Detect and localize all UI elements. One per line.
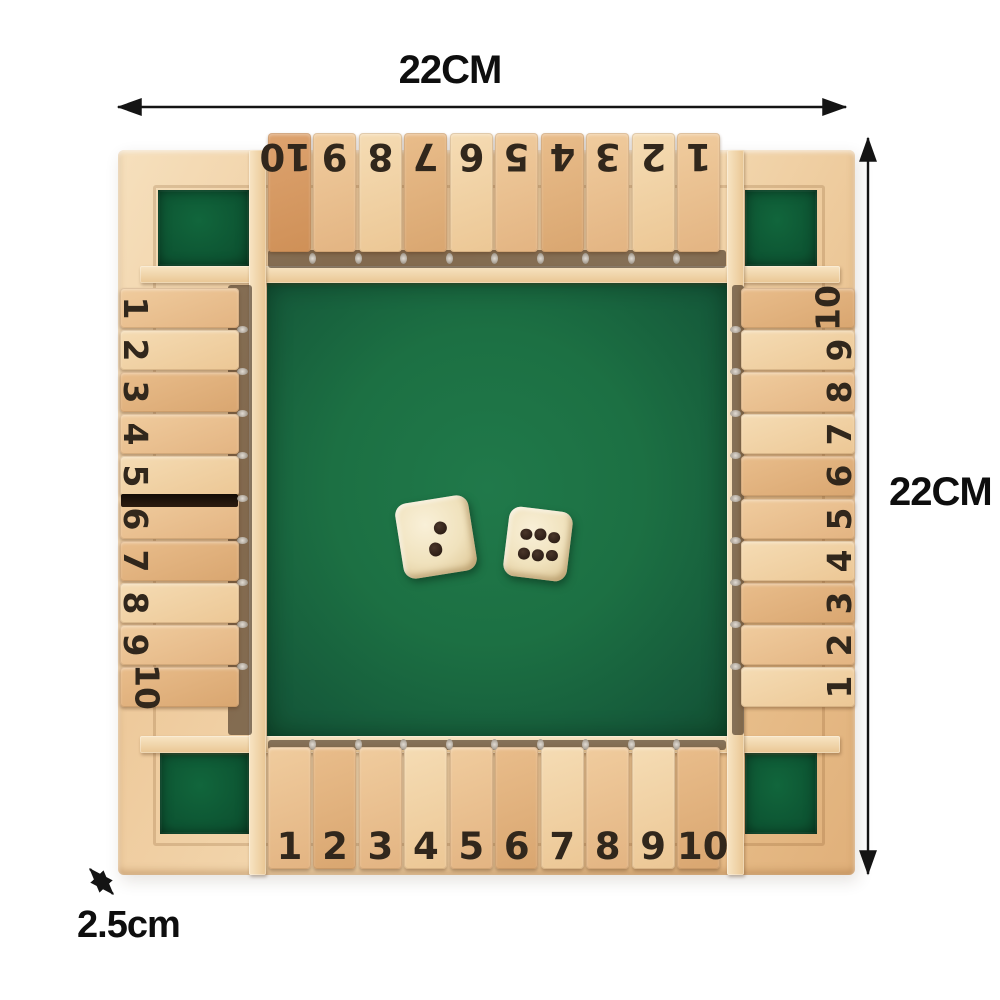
tile-number: 3 — [119, 381, 152, 404]
tile-left-1: 1 — [120, 288, 239, 328]
tile-number: 9 — [313, 138, 356, 175]
tile-left-5: 5 — [120, 456, 239, 496]
tile-number: 9 — [823, 339, 856, 362]
die-pip — [518, 547, 531, 560]
tile-top-2: 2 — [632, 133, 675, 252]
tile-bottom-4: 4 — [404, 747, 447, 869]
tile-top-6: 6 — [450, 133, 493, 252]
hinge-pin — [237, 663, 248, 670]
tile-number: 10 — [812, 285, 845, 331]
tile-right-6: 6 — [741, 456, 855, 496]
tile-bottom-1: 1 — [268, 747, 311, 869]
tile-top-10: 10 — [268, 133, 311, 252]
hinge-pin — [730, 537, 741, 544]
tile-left-4: 4 — [120, 414, 239, 454]
tile-number: 1 — [677, 138, 720, 175]
tile-number: 7 — [823, 423, 856, 446]
hinge-pin — [237, 495, 248, 502]
tile-right-10: 10 — [741, 288, 855, 328]
tile-number: 8 — [823, 381, 856, 404]
hinge-pin — [237, 621, 248, 628]
tile-top-5: 5 — [495, 133, 538, 252]
tile-left-7: 7 — [120, 541, 239, 581]
hinge-pin — [355, 253, 362, 264]
tile-top-8: 8 — [359, 133, 402, 252]
tile-number: 2 — [632, 138, 675, 175]
die-pip — [433, 520, 448, 535]
height-dimension-label: 22CM — [889, 472, 992, 512]
tile-right-4: 4 — [741, 541, 855, 581]
hinge-pin — [237, 579, 248, 586]
hinge-pin — [673, 253, 680, 264]
hinge-pin — [730, 495, 741, 502]
die-pip — [534, 528, 547, 541]
tile-bottom-2: 2 — [313, 747, 356, 869]
width-dimension-label: 22CM — [330, 50, 570, 90]
tile-right-2: 2 — [741, 625, 855, 665]
tile-bottom-10: 10 — [677, 747, 720, 869]
corner-felt-pocket-top-right — [745, 190, 817, 266]
hinge-pin — [446, 253, 453, 264]
tile-number: 2 — [119, 339, 152, 362]
tile-top-9: 9 — [313, 133, 356, 252]
tile-number: 10 — [130, 664, 163, 710]
tile-number: 4 — [404, 828, 447, 865]
hinge-pin — [628, 253, 635, 264]
thickness-dimension-label: 2.5cm — [77, 906, 180, 944]
hinge-pin — [355, 739, 362, 750]
tile-number: 4 — [823, 549, 856, 572]
tile-number: 9 — [119, 633, 152, 656]
tile-left-2: 2 — [120, 330, 239, 370]
hinge-pin — [730, 579, 741, 586]
tile-number: 3 — [823, 591, 856, 614]
corner-felt-pocket-top-left — [158, 190, 249, 266]
tile-left-3: 3 — [120, 372, 239, 412]
product-photo: 22CM 22CM 2.5cm 10987654321 12345678910 … — [0, 0, 1000, 1000]
tile-left-9: 9 — [120, 625, 239, 665]
corner-felt-pocket-bottom-right — [745, 753, 817, 834]
hinge-rod-gap — [121, 494, 238, 507]
hinge-pin — [730, 621, 741, 628]
hinge-pin — [673, 739, 680, 750]
tile-bottom-8: 8 — [586, 747, 629, 869]
die-pip — [531, 549, 544, 562]
tile-number: 1 — [268, 828, 311, 865]
tile-number: 9 — [632, 828, 675, 865]
hinge-pin — [628, 739, 635, 750]
die-pip — [428, 542, 443, 557]
tile-number: 5 — [495, 138, 538, 175]
tile-number: 3 — [359, 828, 402, 865]
tile-number: 1 — [823, 675, 856, 698]
tile-bottom-9: 9 — [632, 747, 675, 869]
thickness-arrow — [90, 869, 113, 894]
die-left — [394, 494, 479, 581]
tile-number: 8 — [119, 591, 152, 614]
hinge-pin — [537, 739, 544, 750]
tile-top-3: 3 — [586, 133, 629, 252]
die-pip — [546, 549, 559, 562]
die-right — [502, 505, 574, 582]
tile-number: 2 — [313, 828, 356, 865]
tile-number: 2 — [823, 633, 856, 656]
tile-left-10: 10 — [120, 667, 239, 707]
tile-right-1: 1 — [741, 667, 855, 707]
hinge-pin — [537, 253, 544, 264]
tile-number: 4 — [541, 138, 584, 175]
tile-number: 8 — [359, 138, 402, 175]
tile-bottom-3: 3 — [359, 747, 402, 869]
tile-number: 7 — [541, 828, 584, 865]
die-pip — [520, 528, 533, 541]
tile-right-3: 3 — [741, 583, 855, 623]
tile-right-7: 7 — [741, 414, 855, 454]
tile-top-1: 1 — [677, 133, 720, 252]
tile-number: 5 — [450, 828, 493, 865]
tile-top-4: 4 — [541, 133, 584, 252]
tile-number: 4 — [119, 423, 152, 446]
tile-left-8: 8 — [120, 583, 239, 623]
hinge-pin — [237, 537, 248, 544]
tile-number: 5 — [119, 465, 152, 488]
tile-number: 6 — [495, 828, 538, 865]
tile-number: 1 — [119, 297, 152, 320]
tile-right-9: 9 — [741, 330, 855, 370]
tile-right-8: 8 — [741, 372, 855, 412]
tile-bottom-5: 5 — [450, 747, 493, 869]
die-pip — [548, 531, 561, 544]
corner-felt-pocket-bottom-left — [160, 753, 249, 834]
hinge-pin — [730, 663, 741, 670]
tile-number: 6 — [823, 465, 856, 488]
tile-right-5: 5 — [741, 499, 855, 539]
tile-bottom-6: 6 — [495, 747, 538, 869]
tile-number: 6 — [119, 507, 152, 530]
tile-bottom-7: 7 — [541, 747, 584, 869]
tile-number: 5 — [823, 507, 856, 530]
center-felt — [267, 283, 727, 737]
hinge-pin — [446, 739, 453, 750]
tile-number: 3 — [586, 138, 629, 175]
tile-number: 10 — [268, 138, 311, 175]
tile-number: 6 — [450, 138, 493, 175]
tile-number: 8 — [586, 828, 629, 865]
tile-number: 7 — [404, 138, 447, 175]
tile-number: 10 — [677, 828, 720, 865]
tile-top-7: 7 — [404, 133, 447, 252]
tile-number: 7 — [119, 549, 152, 572]
